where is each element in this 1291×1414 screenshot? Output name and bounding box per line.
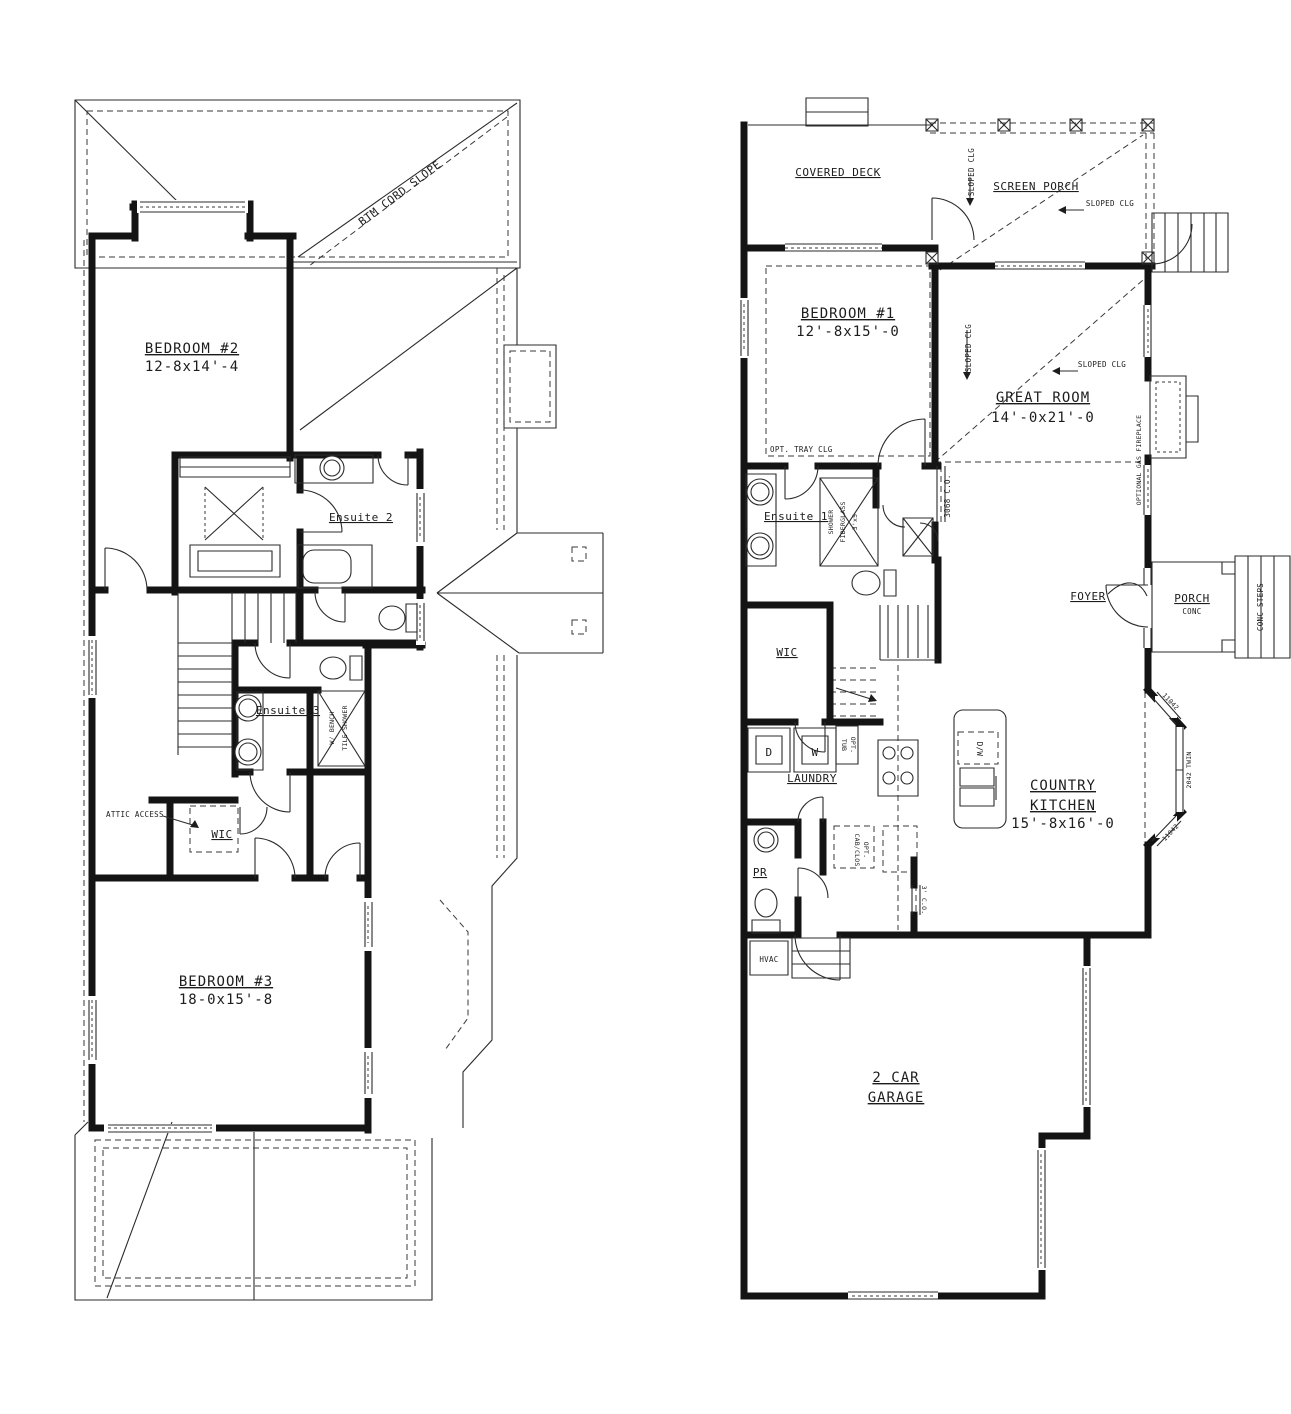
co-3ft-note: 3' C.O.: [920, 886, 928, 915]
bedroom1-label: BEDROOM #1: [801, 306, 895, 322]
gas-fireplace-note: OPTIONAL GAS FIREPLACE: [1135, 415, 1143, 506]
deck-and-chimney: [748, 98, 932, 126]
sloped-clg-note: SLOPED CLG: [1078, 360, 1126, 369]
upper-roof-lines: [75, 100, 603, 1300]
main-floor-plan: COVERED DECK SCREEN PORCH SLOPED CLG SLO…: [740, 98, 1290, 1301]
screen-porch-label: SCREEN PORCH: [993, 180, 1078, 193]
tile-shower-note-1: TILE SHOWER: [341, 705, 349, 750]
arrow-down-icon: [966, 198, 974, 206]
roof-slope-note: BTM CORD SLOPE: [356, 158, 443, 228]
fireplace: [1150, 376, 1198, 458]
great-room-dims: 14'-0x21'-0: [991, 410, 1095, 426]
foyer-label: FOYER: [1070, 590, 1106, 603]
arrow-left-icon: [1052, 367, 1060, 375]
ensuite3-label: Ensuite 3: [256, 704, 320, 717]
kitchen-fixtures: [878, 710, 1006, 828]
arrow-down-icon: [963, 372, 971, 380]
tub-opt-note-2: OPT.: [849, 737, 857, 753]
ensuite2-label: Ensuite 2: [329, 511, 393, 524]
cab-clos-note-1: CAB/CLOS: [853, 834, 861, 867]
great-room-label: GREAT ROOM: [996, 390, 1090, 406]
tub-opt-note-1: TUB: [840, 739, 848, 751]
upper-floor-plan: BTM CORD SLOPE BEDROOM #2 12-8x14'-4 Ens…: [75, 100, 603, 1300]
opt-tray-clg-note: OPT. TRAY CLG: [770, 445, 833, 454]
porch-steps: [1152, 213, 1228, 272]
upper-closet-fixtures: [180, 457, 290, 577]
ensuite1-label: Ensuite 1: [764, 510, 828, 523]
bedroom2-dims: 12-8x14'-4: [145, 359, 239, 375]
pr-label: PR: [753, 866, 767, 879]
shower-note-3: 3'x5: [851, 514, 859, 530]
garage-label-1: 2 CAR: [872, 1070, 919, 1086]
sloped-clg-note: SLOPED CLG: [967, 148, 976, 196]
dw-label: D/W: [975, 742, 984, 757]
tile-shower-note-2: W/ BENCH: [328, 712, 336, 745]
upper-ensuite2-fixtures: [295, 455, 417, 632]
bedroom3-dims: 18-0x15'-8: [179, 992, 273, 1008]
covered-deck-label: COVERED DECK: [795, 166, 880, 179]
porch-label: PORCH: [1174, 592, 1210, 605]
shower-note-2: FIBERGLASS: [839, 501, 847, 542]
window-2042-twin-note: 2042 TWIN: [1185, 751, 1193, 788]
arrowhead-icon: [190, 820, 199, 828]
main-stairs: [836, 605, 938, 702]
porch-conc-note: CONC: [1182, 607, 1201, 616]
upper-roof-dashed-lines: [84, 111, 586, 1286]
sloped-clg-arrows: [963, 178, 1084, 380]
toilet-icon: [320, 657, 346, 679]
linen-closet-icon: [903, 518, 933, 556]
toilet-icon: [379, 606, 405, 630]
toilet-icon: [852, 571, 880, 595]
upper-wic-label: WIC: [211, 828, 232, 841]
bedroom2-label: BEDROOM #2: [145, 341, 239, 357]
floor-plans-drawing: BTM CORD SLOPE BEDROOM #2 12-8x14'-4 Ens…: [0, 0, 1291, 1414]
shower-note-1: SHOWER: [827, 510, 835, 535]
floor-plan-sheet: BTM CORD SLOPE BEDROOM #2 12-8x14'-4 Ens…: [0, 0, 1291, 1414]
toilet-icon: [755, 889, 777, 917]
double-sink-icon: [960, 768, 994, 806]
country-kitchen-label-2: KITCHEN: [1030, 798, 1096, 814]
conc-steps-note: CONC STEPS: [1256, 583, 1265, 631]
arrow-left-icon: [1058, 206, 1066, 214]
tub-icon: [303, 550, 351, 583]
bedroom1-dims: 12'-8x15'-0: [796, 324, 900, 340]
country-kitchen-label-1: COUNTRY: [1030, 778, 1096, 794]
cab-clos-note-2: OPT.: [862, 842, 870, 858]
kitchen-island: [954, 710, 1006, 828]
washer-label: W: [811, 746, 818, 759]
attic-access-note: ATTIC ACCESS: [106, 810, 164, 819]
sloped-clg-note: SLOPED CLG: [964, 324, 973, 372]
front-porch: [1152, 556, 1290, 658]
dryer-label: D: [765, 746, 772, 759]
sloped-clg-note: SLOPED CLG: [1086, 199, 1134, 208]
country-kitchen-dims: 15'-8x16'-0: [1011, 816, 1115, 832]
laundry-label: LAUNDRY: [787, 772, 837, 785]
hvac-label: HVAC: [759, 955, 778, 964]
bedroom3-label: BEDROOM #3: [179, 974, 273, 990]
main-wic-label: WIC: [776, 646, 797, 659]
garage-label-2: GARAGE: [868, 1090, 925, 1106]
co-3068-note: 3068 C.O.: [943, 474, 952, 517]
